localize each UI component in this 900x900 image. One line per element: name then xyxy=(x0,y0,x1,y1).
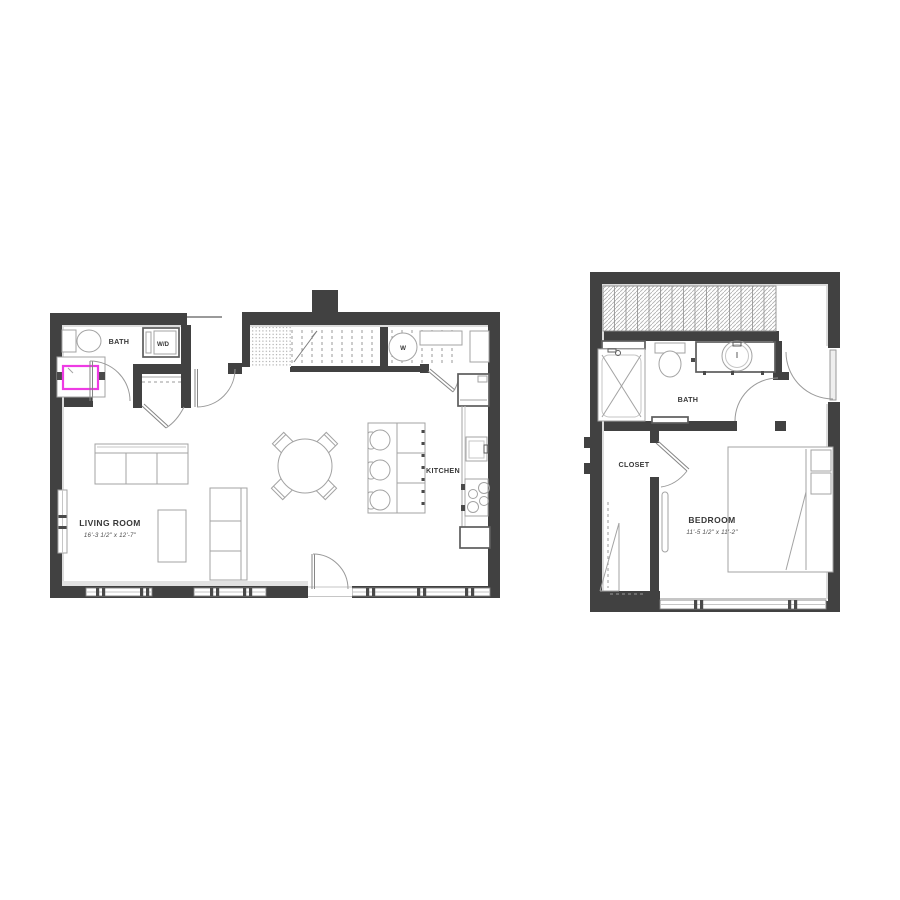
toilet-fixture xyxy=(62,330,101,352)
window-strip xyxy=(352,588,490,596)
bathtub-fixture xyxy=(598,349,645,421)
stair-divider-wall xyxy=(380,325,388,372)
washer-letter: W xyxy=(400,345,406,352)
unit-a-floor-plan: W BATH xyxy=(50,290,500,598)
window-strip xyxy=(194,588,266,596)
bedroom-dimensions: 11'-5 1/2" x 11'-2" xyxy=(686,529,738,536)
bedroom-label: BEDROOM xyxy=(688,515,735,525)
living-room: LIVING ROOM 16'-3 1/2" x 12'-7" xyxy=(79,444,247,580)
floor-plan-drawing: W BATH xyxy=(0,0,900,900)
floor-plan-page: W BATH xyxy=(0,0,900,900)
dining-set xyxy=(271,432,337,499)
kitchen: KITCHEN xyxy=(426,374,490,548)
bedroom-windows xyxy=(660,599,826,610)
unit-b-bath: BATH xyxy=(598,341,778,423)
sofa xyxy=(95,444,188,484)
closet-wall xyxy=(650,477,659,600)
living-room-label: LIVING ROOM xyxy=(79,518,141,528)
unit-b-bedroom: BEDROOM 11'-5 1/2" x 11'-2" xyxy=(662,447,833,572)
vanity-sink xyxy=(696,341,775,375)
closet-door-leaf xyxy=(142,404,168,428)
shower-wall xyxy=(50,397,93,407)
wall-mirror xyxy=(662,492,668,552)
stairs xyxy=(250,327,372,367)
window-strip xyxy=(86,588,152,596)
tub-niche xyxy=(602,341,645,349)
paper-holder xyxy=(691,358,695,362)
bed xyxy=(728,447,833,572)
shower-fixture xyxy=(57,357,105,397)
base-cabinet xyxy=(460,527,490,548)
stove-cooktop xyxy=(461,479,490,516)
bath-label: BATH xyxy=(109,337,130,346)
bath-label: BATH xyxy=(678,395,699,404)
laundry-counter xyxy=(420,331,462,345)
kitchen-label: KITCHEN xyxy=(426,466,460,475)
unit-entry-door xyxy=(195,369,235,407)
bath-north-wall xyxy=(597,331,779,341)
laundry-nook: W xyxy=(389,330,489,364)
refrigerator xyxy=(458,374,489,406)
bar-stool xyxy=(368,490,390,510)
closet-door xyxy=(656,441,689,487)
toilet-fixture xyxy=(655,343,685,377)
coffee-table xyxy=(158,510,186,562)
living-room-dimensions: 16'-3 1/2" x 12'-7" xyxy=(84,532,137,539)
bar-stool xyxy=(368,460,390,480)
side-window xyxy=(58,490,67,553)
towel-bar xyxy=(652,417,688,423)
bar-stool xyxy=(368,430,390,450)
unit-b-entry-door xyxy=(786,348,840,402)
stair-landing-hatch xyxy=(250,327,291,367)
kitchen-sink xyxy=(466,437,488,461)
stair-direction-line xyxy=(294,331,317,362)
unit-b-floor-plan: BATH CLOSET xyxy=(584,272,840,612)
kitchen-island xyxy=(368,423,425,513)
media-shelf xyxy=(210,488,247,580)
unit-b-closet: CLOSET xyxy=(600,441,689,594)
stair-ledge-wall xyxy=(290,366,425,372)
bath-door-arc xyxy=(735,378,778,421)
dining-table xyxy=(278,439,332,493)
washer-dryer-unit: W/D xyxy=(143,328,179,357)
patio-door xyxy=(308,554,352,598)
stair-hall-door xyxy=(420,364,459,392)
laundry-cabinet xyxy=(470,331,489,362)
unit-a-bath: BATH xyxy=(57,330,130,401)
closet-label: CLOSET xyxy=(619,460,650,469)
chimney-bump xyxy=(312,290,338,314)
open-to-below-hatch xyxy=(603,286,776,331)
washer-dryer-label: W/D xyxy=(157,341,170,348)
